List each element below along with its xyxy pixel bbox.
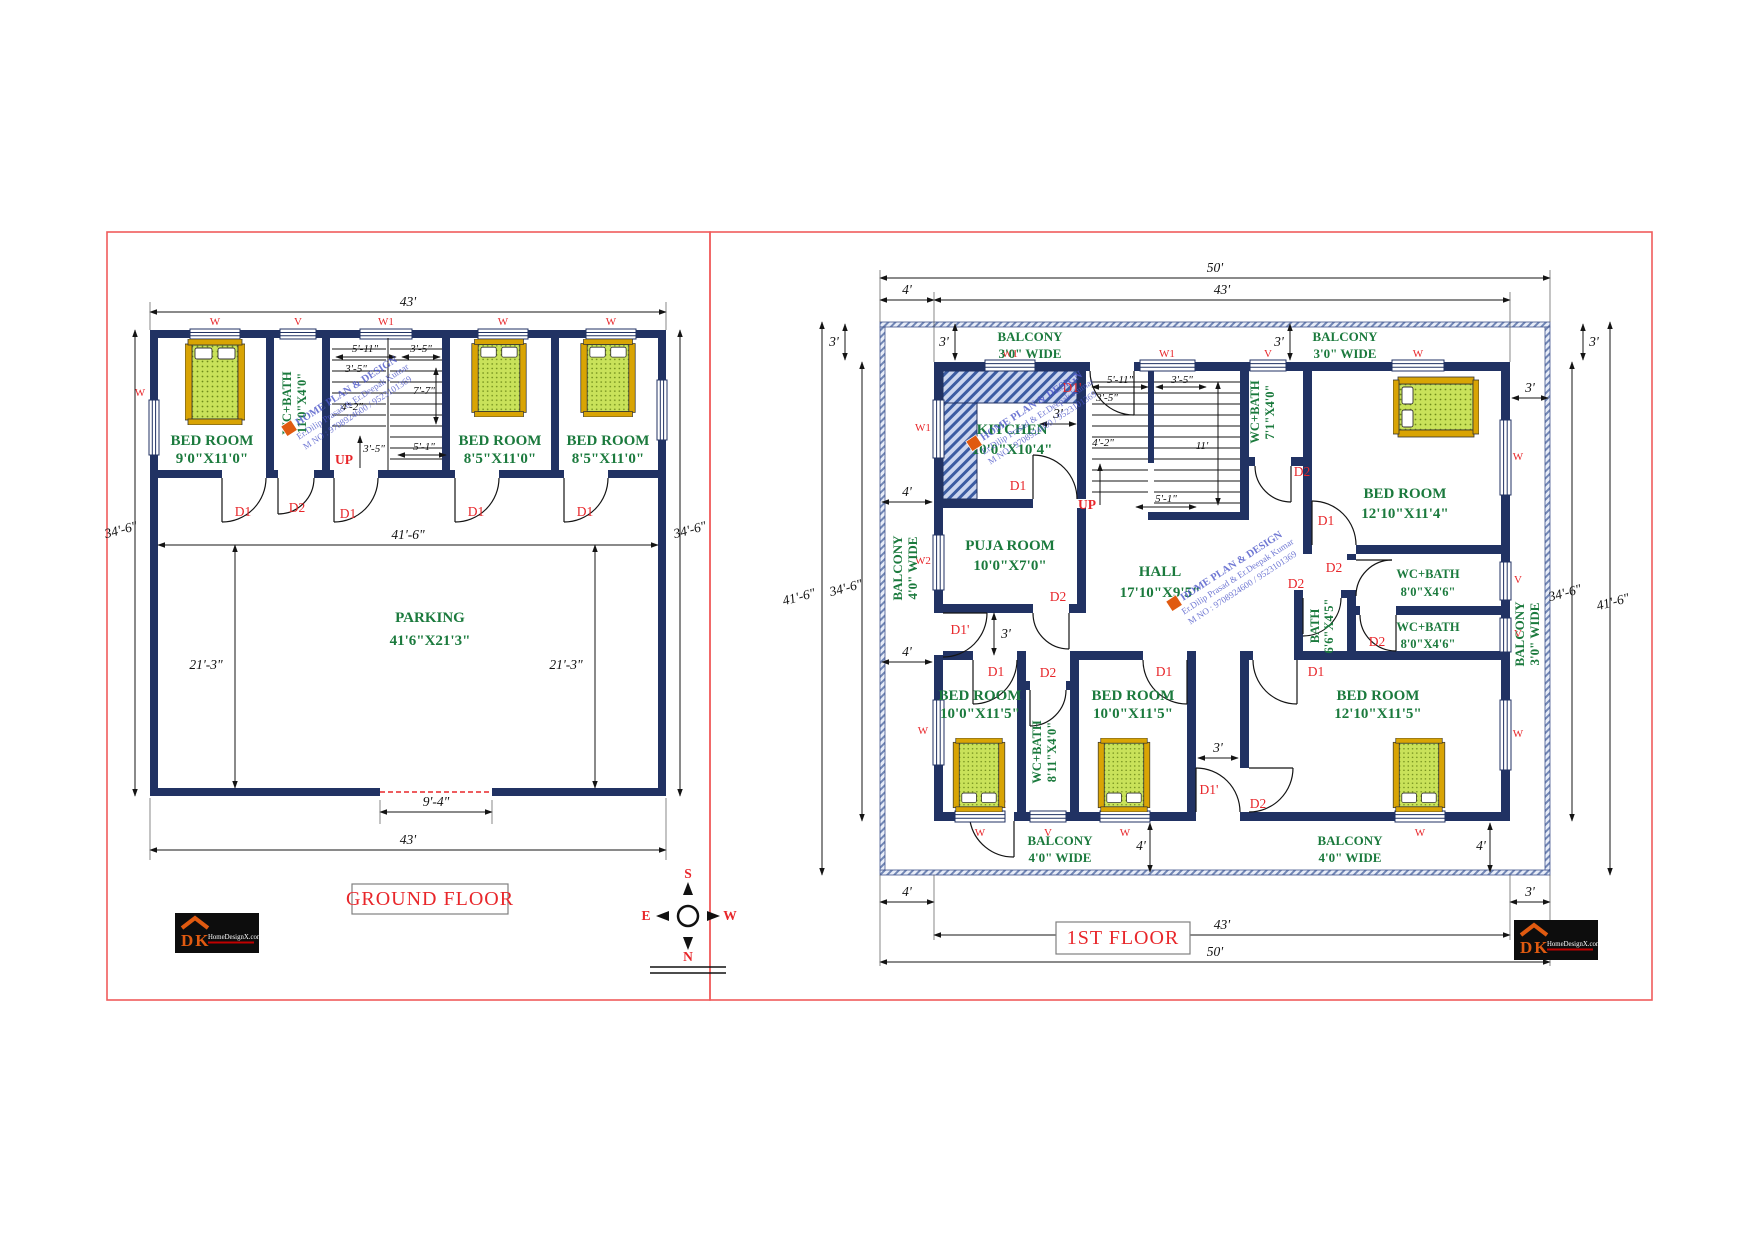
dim-label: 43': [400, 832, 418, 847]
stair-dim: 4'-2": [1092, 437, 1114, 449]
window: [149, 400, 159, 455]
dim-label: 3': [828, 334, 840, 349]
compass-west: W: [723, 908, 737, 923]
balcony-label: BALCONY: [1512, 601, 1527, 667]
bed: [185, 339, 245, 425]
window-label: W: [210, 316, 221, 328]
door-label: D2: [1040, 665, 1057, 680]
bed: [1393, 738, 1445, 812]
ground-doors: D1 D2 D1 D1 D1: [222, 478, 608, 522]
door-label: D1: [1010, 478, 1027, 493]
window: [933, 400, 944, 458]
window-label: W1: [915, 422, 931, 434]
balcony-label: BALCONY: [1317, 833, 1383, 848]
first-title: 1ST FLOOR: [1056, 922, 1190, 954]
door-label: D2: [1369, 634, 1386, 649]
window: [280, 329, 316, 339]
stair-dim: 5'-11": [1107, 374, 1134, 386]
room-name: PUJA ROOM: [965, 538, 1055, 554]
window: [955, 811, 1005, 822]
door-label: D2: [1326, 560, 1343, 575]
room-size: 8'5"X11'0": [464, 451, 537, 467]
balcony-size: 4'0" WIDE: [1029, 850, 1092, 865]
window: [985, 360, 1035, 371]
dim-label: 21'-3": [189, 657, 223, 672]
ground-floor-plan: W V W1 W W W 5': [102, 294, 737, 973]
window-label: W1: [378, 316, 394, 328]
dim-label: 43': [400, 294, 418, 309]
room-name: BED ROOM: [459, 433, 542, 449]
dim-label: 50': [1207, 260, 1225, 275]
dim-label: 21'-3": [549, 657, 583, 672]
balcony-size: 4'0" WIDE: [1319, 850, 1382, 865]
room-size: 10'0"X11'5": [940, 706, 1020, 722]
window: [657, 380, 667, 440]
dim-label: 34'-6": [827, 576, 864, 599]
balcony-size: 3'0" WIDE: [1314, 346, 1377, 361]
room-size: 8'11"X4'0": [1045, 722, 1059, 782]
stair-dim: 3'-5": [1170, 374, 1193, 386]
dim-label: 41'-6": [1595, 590, 1631, 613]
window: [1500, 700, 1511, 770]
window-label: W: [498, 316, 509, 328]
window: [1500, 420, 1511, 495]
room-size: 8'0"X4'6": [1401, 637, 1456, 651]
dk-logo: [1514, 920, 1602, 960]
door-label: D2: [289, 500, 306, 515]
dim-label: 4': [1476, 838, 1487, 853]
dim-label: 9'-4": [423, 794, 450, 809]
drawing-canvas: DK HomeDesignX.com HOME PLAN & DESIGN Er…: [0, 0, 1755, 1240]
room-name: BED ROOM: [567, 433, 650, 449]
dim-label: 43': [1214, 282, 1232, 297]
window: [190, 329, 240, 339]
window-label: V: [1514, 574, 1522, 586]
window-label: W: [975, 827, 986, 839]
compass-south: S: [684, 866, 692, 881]
balcony-label: BALCONY: [1027, 833, 1093, 848]
door-label: D1: [340, 506, 357, 521]
room-size: 7'1"X4'0": [1263, 385, 1277, 440]
room-size: 9'0"X11'0": [176, 451, 249, 467]
window-label: V: [1264, 348, 1272, 360]
watermark: [1166, 526, 1302, 631]
window-label: W: [1513, 728, 1524, 740]
balcony-label: BALCONY: [890, 535, 905, 601]
plan-title: 1ST FLOOR: [1067, 927, 1180, 949]
room-name: BED ROOM: [939, 688, 1022, 704]
stair-dim: 7'-7": [413, 385, 435, 397]
stair-dim: 5'-11": [352, 343, 379, 355]
window: [478, 329, 528, 339]
first-stairs: 5'-11" 3'-5" 3'-5" 4'-2" 11' 5'-1" UP: [1078, 374, 1240, 512]
door-label: D2: [1294, 464, 1311, 479]
dim-label: 3': [1000, 626, 1012, 641]
dim-label: 3': [1524, 380, 1536, 395]
window-label: W1: [1159, 348, 1175, 360]
room-size: 10'0"X11'5": [1093, 706, 1173, 722]
room-name: WC+BATH: [1396, 620, 1459, 634]
dim-label: 3': [1212, 740, 1224, 755]
stair-dim: 3'-5": [409, 343, 432, 355]
floor-plan-sheet: DK HomeDesignX.com HOME PLAN & DESIGN Er…: [0, 0, 1755, 1240]
window-label: W: [135, 387, 146, 399]
door-label: D2: [1288, 576, 1305, 591]
stair-dim: 11': [1196, 440, 1209, 452]
dim-label: 4': [902, 884, 913, 899]
room-name: BED ROOM: [1337, 688, 1420, 704]
room-name: BED ROOM: [171, 433, 254, 449]
window-label: W: [1513, 451, 1524, 463]
dim-label: 3': [1588, 334, 1600, 349]
window: [1500, 618, 1511, 652]
bed: [953, 738, 1005, 812]
bed: [1393, 377, 1479, 437]
dim-label: 4': [902, 644, 913, 659]
room-name: BATH: [1308, 608, 1322, 643]
window: [1395, 811, 1445, 822]
window: [933, 535, 944, 590]
window-label: W: [1413, 348, 1424, 360]
window: [1392, 360, 1444, 371]
room-name: BED ROOM: [1364, 486, 1447, 502]
dim-label: 3': [1524, 884, 1536, 899]
balcony-label: BALCONY: [1312, 329, 1378, 344]
window-label: W: [606, 316, 617, 328]
stair-up-label: UP: [335, 452, 353, 467]
door-label: D1: [1156, 664, 1173, 679]
door-label: D1: [1318, 513, 1335, 528]
window-label: W: [1415, 827, 1426, 839]
plan-title: GROUND FLOOR: [346, 888, 514, 910]
bed: [581, 339, 635, 417]
dim-label: 4': [902, 484, 913, 499]
stair-up-label: UP: [1078, 497, 1096, 512]
door-label: D1: [988, 664, 1005, 679]
dim-label: 4': [902, 282, 913, 297]
compass-north: N: [683, 949, 693, 964]
balcony-size: 3'0" WIDE: [1527, 603, 1542, 666]
dim-label: 41'-6": [781, 585, 817, 608]
room-name: BED ROOM: [1092, 688, 1175, 704]
window: [1140, 360, 1195, 371]
door-label: D1': [951, 622, 970, 637]
first-floor-plan: 5'-11" 3'-5" 3'-5" 4'-2" 11' 5'-1" UP: [781, 260, 1631, 966]
window: [1030, 811, 1066, 822]
compass-east: E: [641, 908, 650, 923]
stair-dim: 3'-5": [362, 443, 385, 455]
window: [1500, 562, 1511, 600]
door-label: D2: [1050, 589, 1067, 604]
stair-dim: 5'-1": [1155, 493, 1177, 505]
room-name: PARKING: [395, 610, 465, 626]
bed: [1098, 738, 1150, 812]
room-name: WC+BATH: [1396, 567, 1459, 581]
window: [1250, 360, 1286, 371]
balcony-size: 4'0" WIDE: [905, 537, 920, 600]
dim-label: 4': [1136, 838, 1147, 853]
ground-title: GROUND FLOOR: [346, 884, 514, 914]
bed: [472, 339, 526, 417]
stair-dim: 5'-1": [413, 441, 435, 453]
room-size: 10'0"X7'0": [973, 558, 1046, 574]
room-size: 8'5"X11'0": [572, 451, 645, 467]
door-label: D1: [468, 504, 485, 519]
room-size: 8'0"X4'6": [1401, 585, 1456, 599]
window-label: V: [294, 316, 302, 328]
door-label: D1: [235, 504, 252, 519]
dim-label: 41'-6": [391, 527, 425, 542]
balcony-size: 3'0" WIDE: [999, 346, 1062, 361]
door-label: D1: [1308, 664, 1325, 679]
door-label: D1': [1200, 782, 1219, 797]
door-label: D1: [577, 504, 594, 519]
compass-icon: S N E W: [641, 866, 737, 973]
room-name: WC+BATH: [1030, 720, 1044, 783]
window: [586, 329, 636, 339]
dim-label: 43': [1214, 917, 1232, 932]
room-size: 41'6"X21'3": [390, 633, 471, 649]
window-label: W: [1120, 827, 1131, 839]
balcony-label: BALCONY: [997, 329, 1063, 344]
dim-label: 34'-6": [1546, 581, 1583, 604]
window-label: W: [918, 725, 929, 737]
room-size: 12'10"X11'4": [1361, 506, 1449, 522]
room-size: 12'10"X11'5": [1334, 706, 1422, 722]
dim-label: 3': [1273, 334, 1285, 349]
dim-label: 34'-6": [671, 518, 708, 541]
dim-label: 50': [1207, 944, 1225, 959]
window: [360, 329, 412, 339]
door-label: D2: [1250, 796, 1267, 811]
first-floor-panel-border: [710, 232, 1652, 1000]
room-name: WC+BATH: [1248, 380, 1262, 443]
dim-label: 3': [938, 334, 950, 349]
room-size: 6'6"X4'5": [1322, 599, 1336, 654]
window: [1100, 811, 1150, 822]
dk-logo: [175, 913, 263, 953]
room-name: HALL: [1139, 564, 1182, 580]
